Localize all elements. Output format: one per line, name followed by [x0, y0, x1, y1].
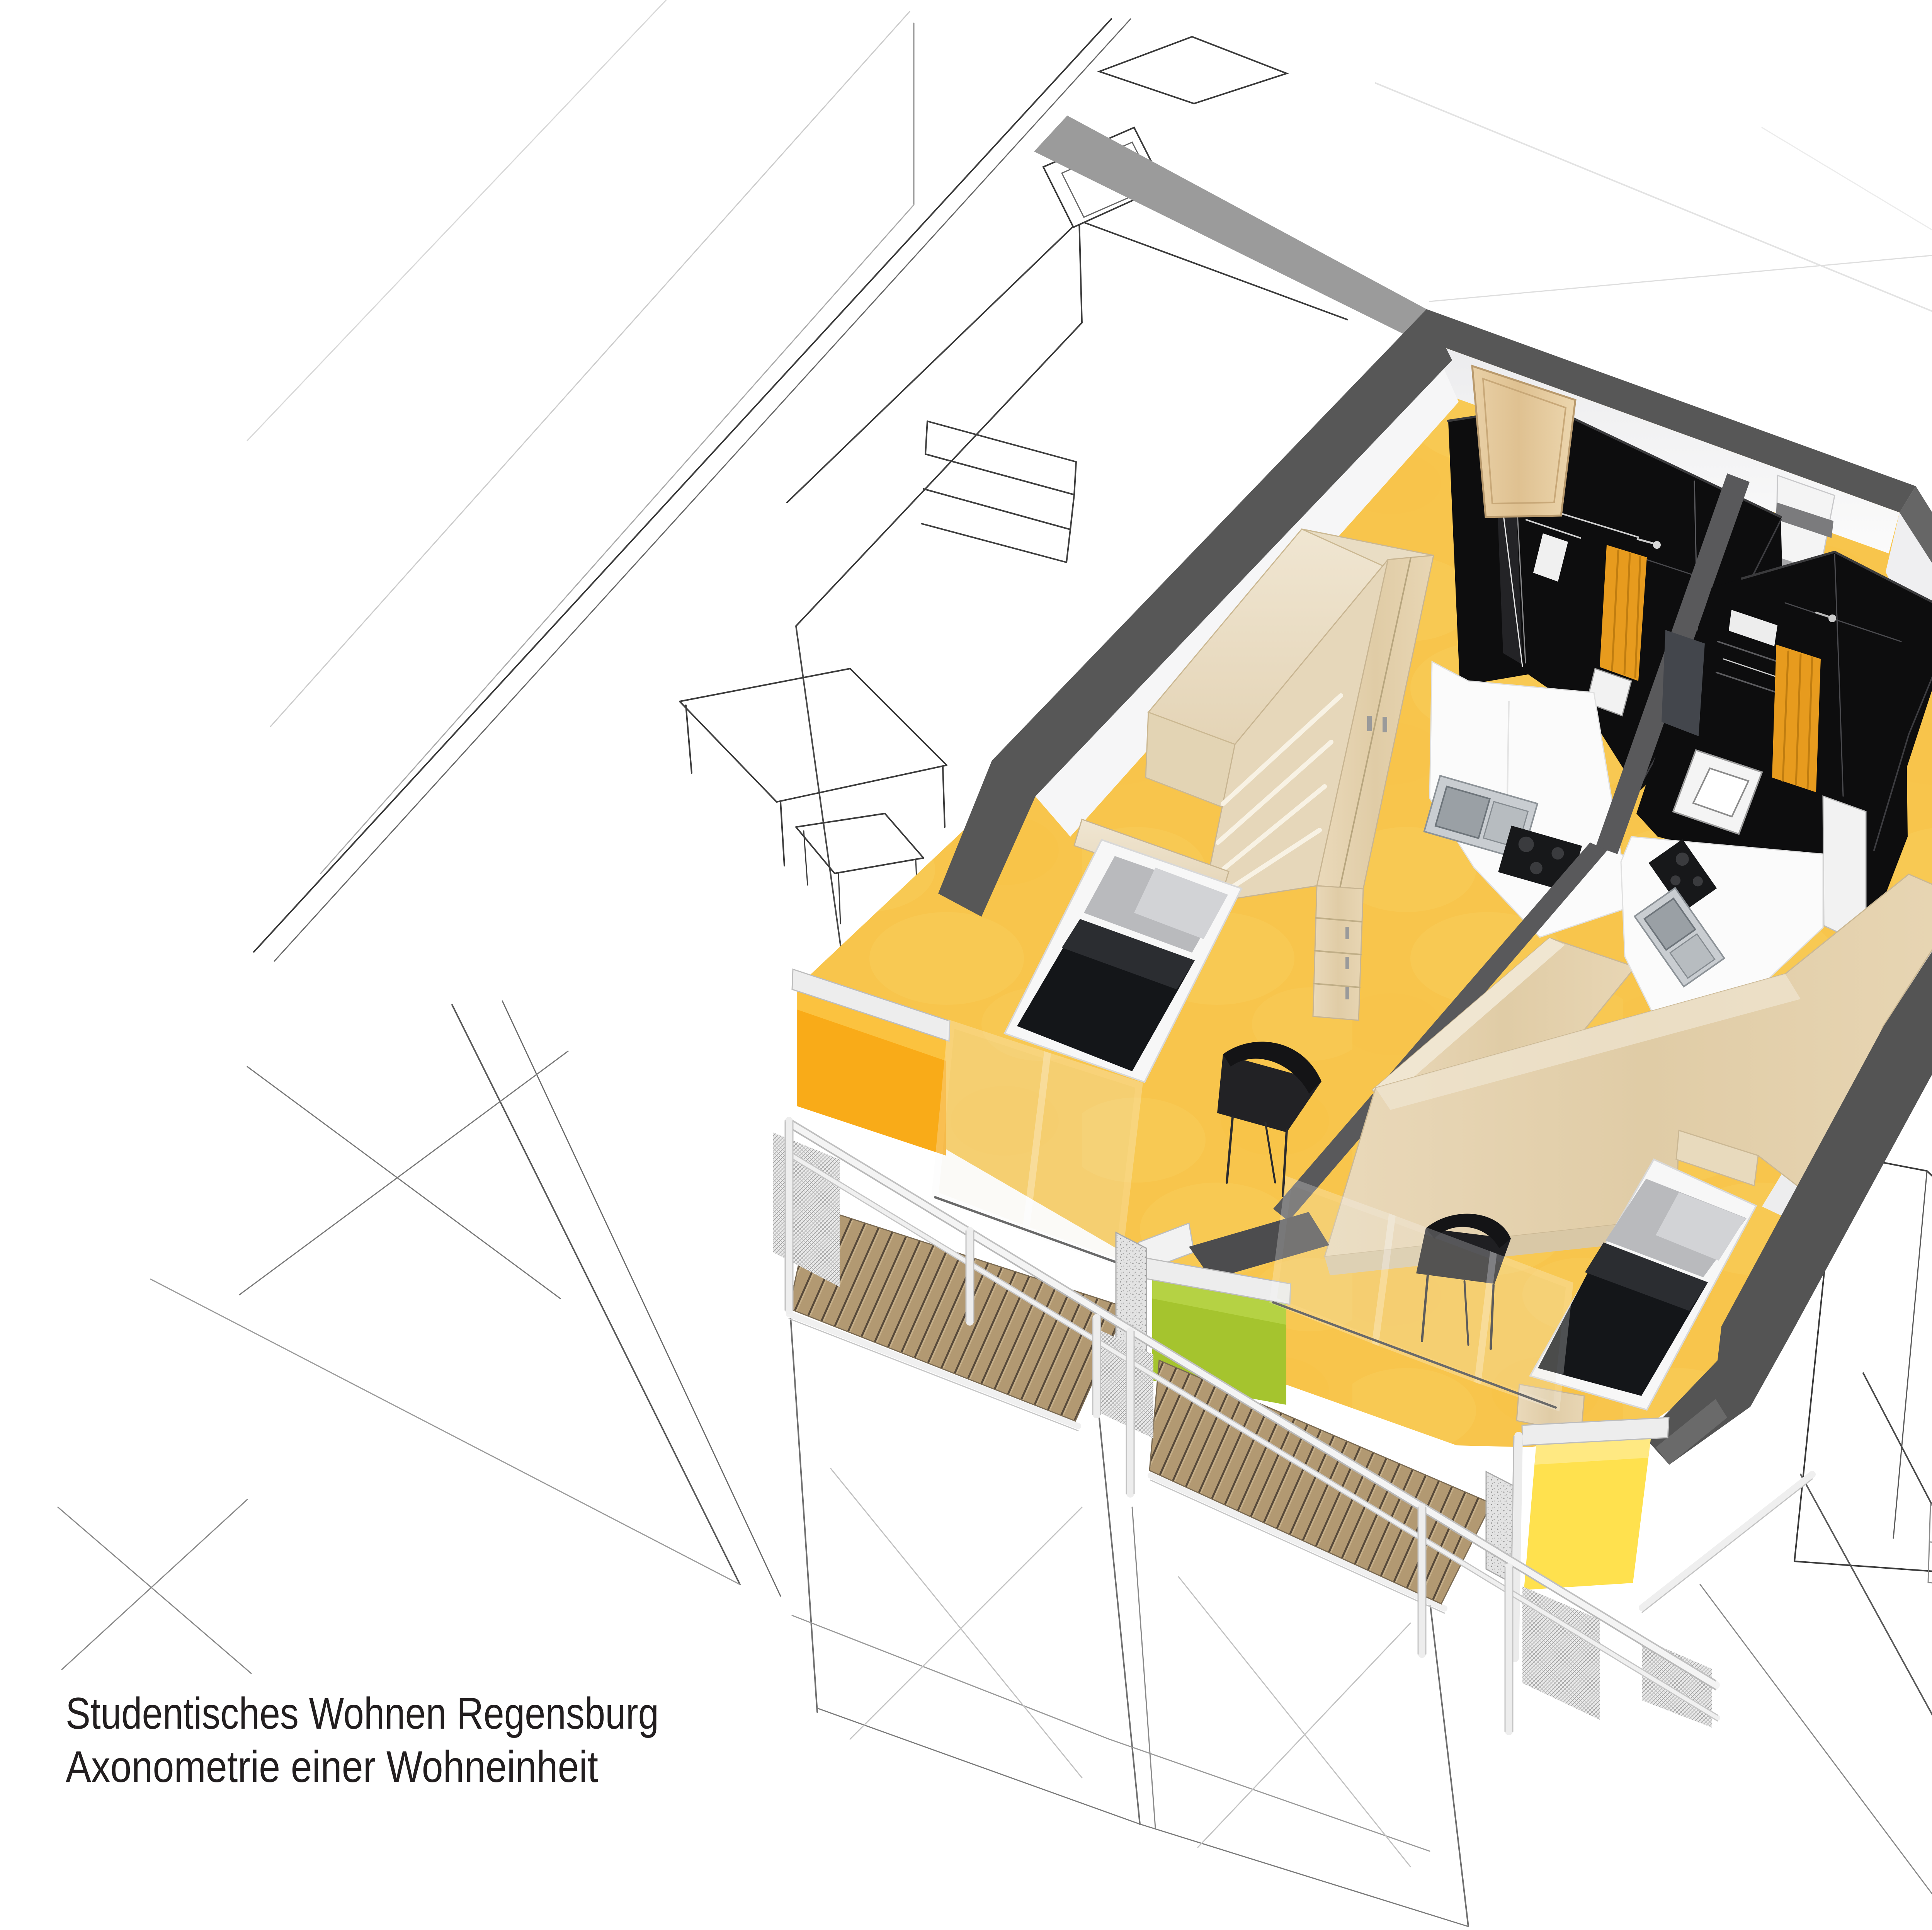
svg-text:Studentisches Wohnen Regensbur: Studentisches Wohnen Regensburg: [66, 1689, 659, 1738]
svg-text:Axonometrie einer Wohneinheit: Axonometrie einer Wohneinheit: [66, 1742, 598, 1792]
